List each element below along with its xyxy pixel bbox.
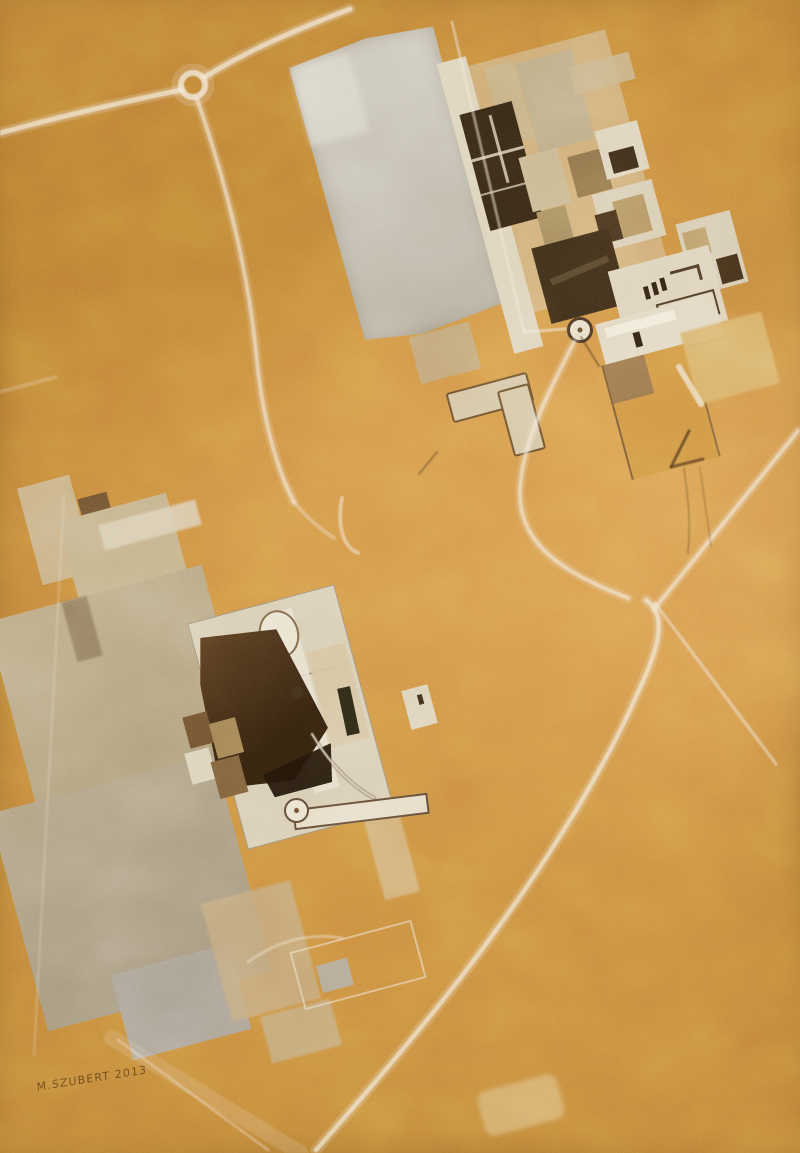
tone-dark-bottom-right — [560, 900, 800, 1153]
dark-pane — [716, 254, 744, 285]
building-mark-line — [670, 264, 700, 275]
building-mark — [632, 331, 643, 347]
bright-strip — [604, 310, 676, 338]
roundabout-left-glow — [176, 68, 210, 102]
pipeline-end-circle — [284, 798, 309, 823]
light-strip-below-complex — [364, 812, 420, 901]
tone-dark-top-right — [620, 0, 800, 200]
field-light-streak — [550, 255, 610, 286]
road-west — [0, 90, 181, 133]
artist-signature: M.SZUBERT 2013 — [36, 1063, 147, 1094]
dark-line-hook — [419, 452, 437, 474]
small-cream-outbuilding — [401, 684, 437, 730]
road-diagonal-se — [655, 603, 776, 764]
dark-pane — [608, 146, 639, 174]
hook-building-column — [497, 383, 546, 457]
building-mark — [659, 277, 667, 291]
painting-canvas: M.SZUBERT 2013 — [0, 0, 800, 1153]
road-south — [197, 99, 294, 502]
dark-line-plot-edge — [700, 468, 711, 546]
gray-pane — [316, 958, 354, 993]
road-curve-main — [316, 600, 659, 1150]
light-patch-bottom-center — [475, 1072, 566, 1138]
building-mark-line — [696, 264, 703, 280]
chalk-hook-mark — [340, 498, 358, 553]
twig-mark-fade — [684, 468, 689, 553]
roundabout-left — [181, 73, 205, 97]
roundabout-right — [567, 317, 593, 343]
dark-dot — [291, 686, 304, 699]
road-south-fade — [294, 502, 334, 538]
building-mark — [417, 694, 424, 705]
building-mark — [651, 282, 659, 296]
building-mark — [643, 286, 651, 300]
outlined-patch — [289, 920, 426, 1011]
faint-line-left-edge — [0, 377, 56, 392]
